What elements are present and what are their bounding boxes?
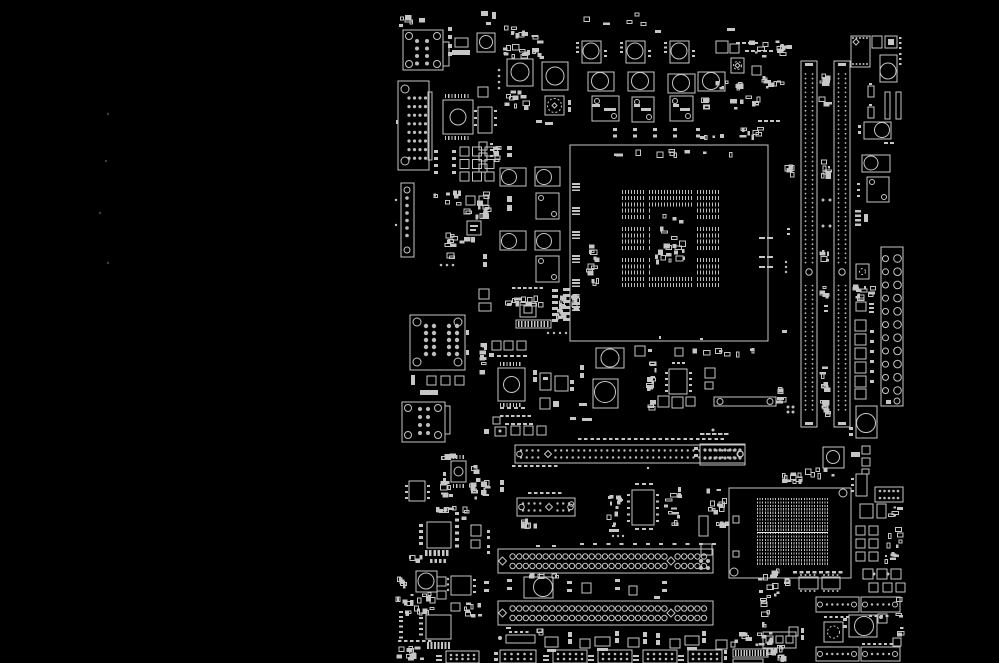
dimm-slot-b [834,61,850,427]
left-of-dimm-passives [777,45,794,403]
between-pci-components [484,577,667,598]
super-io-cluster [434,87,497,266]
clock-generator-area [479,341,574,425]
bottom-right-corner [758,569,905,661]
right-lower-column [851,474,903,564]
mid-board-components [570,346,795,435]
vga-connector [396,81,432,170]
left-bottom-block [396,571,482,649]
bottom-strip-row1 [498,627,773,652]
pci-slot-1 [498,543,716,579]
top-left-cluster [448,11,571,125]
pcb-layout-canvas[interactable] [0,0,999,663]
passives-above-bga [782,468,835,484]
pci-slot-2 [498,596,713,625]
front-panel-header [694,433,745,465]
atx-left-column [849,264,877,438]
bottom-strip-headers [396,646,786,663]
serial-port [395,183,414,257]
fdd-header [481,480,575,529]
right-top-column [851,36,902,226]
bios-soic-cluster [607,483,682,537]
usb-stack-connector [410,315,469,395]
left-mid-block [405,454,490,563]
off-board-specks [99,113,109,264]
cpu-socket [556,145,773,341]
bga-chipset [729,488,851,578]
between-dimm-passives [819,74,832,416]
pad-near-bga [823,446,870,474]
dimm-slot-a [801,61,817,427]
io-connector-top [399,15,449,70]
lan-connector [402,402,450,442]
atx-power-connector [881,247,903,406]
left-of-bga-cluster [699,489,728,570]
above-pci-passives [484,426,546,436]
vrm-area [576,13,754,140]
mid-left-vrm-caps [477,142,560,311]
